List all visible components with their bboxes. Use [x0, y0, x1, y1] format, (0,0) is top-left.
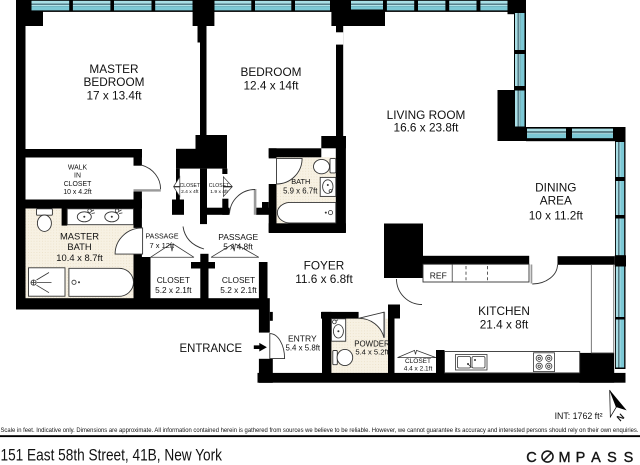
svg-text:ENTRY: ENTRY — [288, 334, 317, 344]
svg-text:INT: 1762 ft²: INT: 1762 ft² — [555, 411, 603, 421]
svg-text:11.6 x 6.8ft: 11.6 x 6.8ft — [295, 272, 353, 286]
svg-text:10 x 11.2ft: 10 x 11.2ft — [529, 208, 584, 222]
svg-text:KITCHEN: KITCHEN — [478, 304, 530, 318]
svg-text:2.4 x 4ft: 2.4 x 4ft — [181, 189, 199, 195]
svg-text:C: C — [526, 450, 536, 465]
svg-text:21.4 x 8ft: 21.4 x 8ft — [480, 318, 529, 332]
svg-text:S: S — [607, 450, 617, 465]
svg-text:4.4 x 2.1ft: 4.4 x 2.1ft — [404, 366, 433, 373]
svg-text:5.4 x 5.2ft: 5.4 x 5.2ft — [355, 348, 389, 357]
svg-text:IN: IN — [74, 173, 81, 180]
svg-text:BATH: BATH — [291, 177, 310, 186]
svg-text:MASTER: MASTER — [89, 62, 138, 76]
svg-text:WALK: WALK — [68, 164, 88, 171]
svg-text:REF: REF — [430, 271, 447, 281]
svg-text:10.4 x 8.7ft: 10.4 x 8.7ft — [56, 252, 103, 263]
svg-text:P: P — [576, 450, 586, 465]
svg-text:M: M — [558, 450, 570, 465]
svg-text:PASSAGE: PASSAGE — [146, 231, 179, 240]
svg-text:ENTRANCE: ENTRANCE — [180, 341, 243, 355]
svg-text:5.4 x 5.8ft: 5.4 x 5.8ft — [285, 344, 320, 353]
svg-text:10 x 4.2ft: 10 x 4.2ft — [63, 189, 91, 196]
svg-text:16.6 x 23.8ft: 16.6 x 23.8ft — [394, 121, 460, 135]
svg-text:1.9 x 4ft: 1.9 x 4ft — [210, 189, 228, 195]
svg-text:BEDROOM: BEDROOM — [84, 75, 145, 89]
svg-text:151 East 58th Street, 41B, New: 151 East 58th Street, 41B, New York — [1, 446, 223, 464]
svg-text:5 x 4.8ft: 5 x 4.8ft — [223, 242, 253, 252]
svg-text:5.2 x 2.1ft: 5.2 x 2.1ft — [155, 285, 192, 295]
svg-text:A: A — [591, 450, 601, 465]
svg-text:CLOSET: CLOSET — [157, 275, 190, 285]
svg-text:AREA: AREA — [540, 194, 572, 208]
svg-text:CLOSET: CLOSET — [180, 183, 200, 189]
svg-text:CLOSET: CLOSET — [64, 181, 92, 188]
svg-text:S: S — [624, 450, 634, 465]
svg-text:DINING: DINING — [535, 181, 576, 195]
svg-text:CLOSET: CLOSET — [222, 275, 255, 285]
svg-text:PASSAGE: PASSAGE — [218, 232, 258, 242]
svg-text:17 x 13.4ft: 17 x 13.4ft — [86, 89, 142, 103]
svg-text:7 x 12ft: 7 x 12ft — [149, 241, 175, 250]
svg-text:FOYER: FOYER — [304, 259, 345, 273]
svg-text:Scale in feet. Indicative only: Scale in feet. Indicative only. Dimensio… — [1, 428, 639, 434]
svg-text:5.9 x 6.7ft: 5.9 x 6.7ft — [283, 187, 318, 196]
svg-text:12.4 x 14ft: 12.4 x 14ft — [243, 78, 299, 92]
svg-text:CLOSET: CLOSET — [209, 183, 229, 189]
svg-text:5.2 x 2.1ft: 5.2 x 2.1ft — [220, 285, 257, 295]
svg-text:CLOSET: CLOSET — [405, 358, 431, 365]
svg-text:BEDROOM: BEDROOM — [241, 65, 302, 79]
svg-text:BATH: BATH — [67, 241, 91, 252]
